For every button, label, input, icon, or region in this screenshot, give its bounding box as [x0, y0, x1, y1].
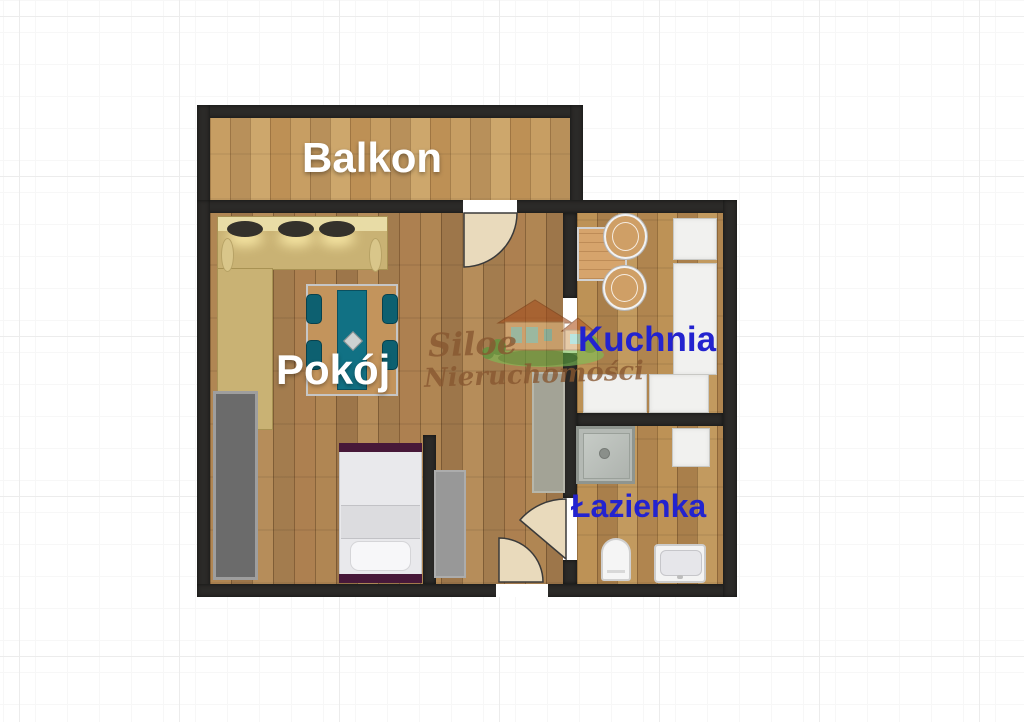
- shower-drain-icon: [599, 448, 610, 459]
- toilet-icon: [601, 538, 631, 581]
- kitchen-chair-back: [611, 274, 638, 302]
- bed-headboard: [339, 443, 422, 452]
- watermark-line2: Nieruchomości: [424, 358, 645, 392]
- sofa-cushion: [319, 221, 355, 237]
- sofa-armrest: [221, 238, 234, 272]
- toilet-seat-line: [607, 570, 625, 573]
- bed-footboard: [339, 574, 422, 583]
- balcony-top-wall: [197, 105, 583, 118]
- floor-plan: Siloe Nieruchomości Balkon Pokój Kuchnia…: [0, 0, 1024, 722]
- balcony-door-icon: [455, 205, 530, 280]
- bathroom-label: Łazienka: [571, 490, 706, 522]
- main-left-wall: [197, 200, 210, 597]
- kitchen-counter: [649, 374, 709, 413]
- shower: [576, 426, 635, 484]
- wardrobe: [213, 391, 258, 580]
- room-label: Pokój: [276, 349, 390, 391]
- balcony-left-wall: [197, 105, 210, 213]
- kitchen-chair: [604, 214, 647, 259]
- sofa-cushion: [278, 221, 314, 237]
- bathroom-door-icon: [505, 490, 575, 565]
- dining-chair: [382, 294, 398, 324]
- hall-rug-2: [532, 372, 565, 493]
- sink-basin: [660, 550, 702, 576]
- watermark-line1: Siloe: [427, 326, 517, 361]
- main-right-wall: [723, 200, 737, 597]
- hall-rug: [434, 470, 466, 578]
- sink-faucet-icon: [677, 575, 683, 579]
- kitchen-bathroom-wall: [577, 413, 723, 426]
- bed-blanket: [341, 505, 420, 539]
- sofa-cushion: [227, 221, 263, 237]
- dining-chair: [306, 294, 322, 324]
- kitchen-counter: [673, 218, 717, 260]
- bathroom-cabinet: [672, 428, 710, 467]
- interior-wall-top: [563, 213, 577, 298]
- sofa-armrest: [369, 238, 382, 272]
- bed-pillow: [350, 541, 411, 571]
- kitchen-label: Kuchnia: [578, 322, 716, 357]
- balcony-right-wall: [570, 105, 583, 213]
- sink: [654, 544, 706, 583]
- main-bottom-wall: [197, 584, 737, 597]
- balcony-label: Balkon: [302, 137, 442, 179]
- kitchen-chair-back: [612, 222, 639, 251]
